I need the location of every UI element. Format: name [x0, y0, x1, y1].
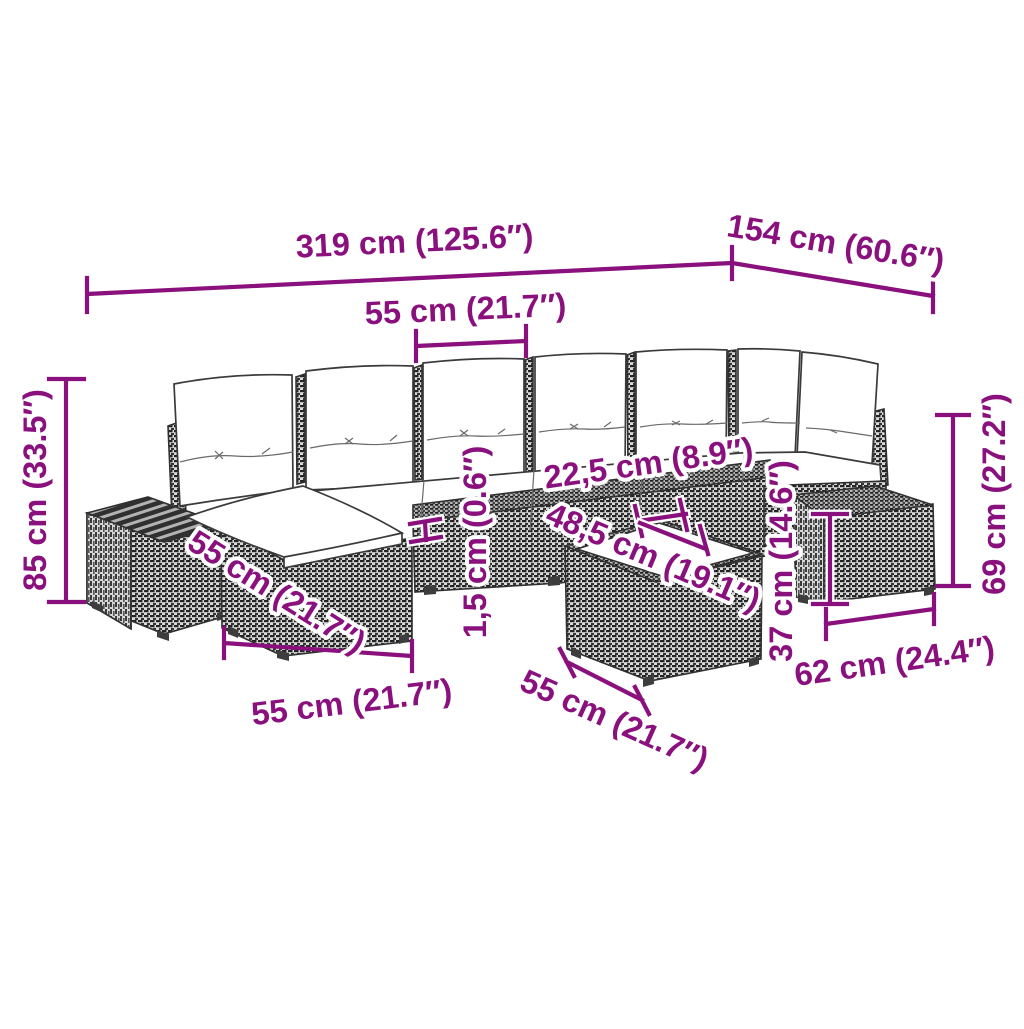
- svg-text:1,5 cm (0.6″): 1,5 cm (0.6″): [457, 446, 493, 639]
- svg-text:85 cm (33.5″): 85 cm (33.5″): [17, 389, 53, 591]
- svg-text:69 cm (27.2″): 69 cm (27.2″): [976, 393, 1012, 595]
- svg-text:37 cm (14.6″): 37 cm (14.6″): [763, 460, 799, 662]
